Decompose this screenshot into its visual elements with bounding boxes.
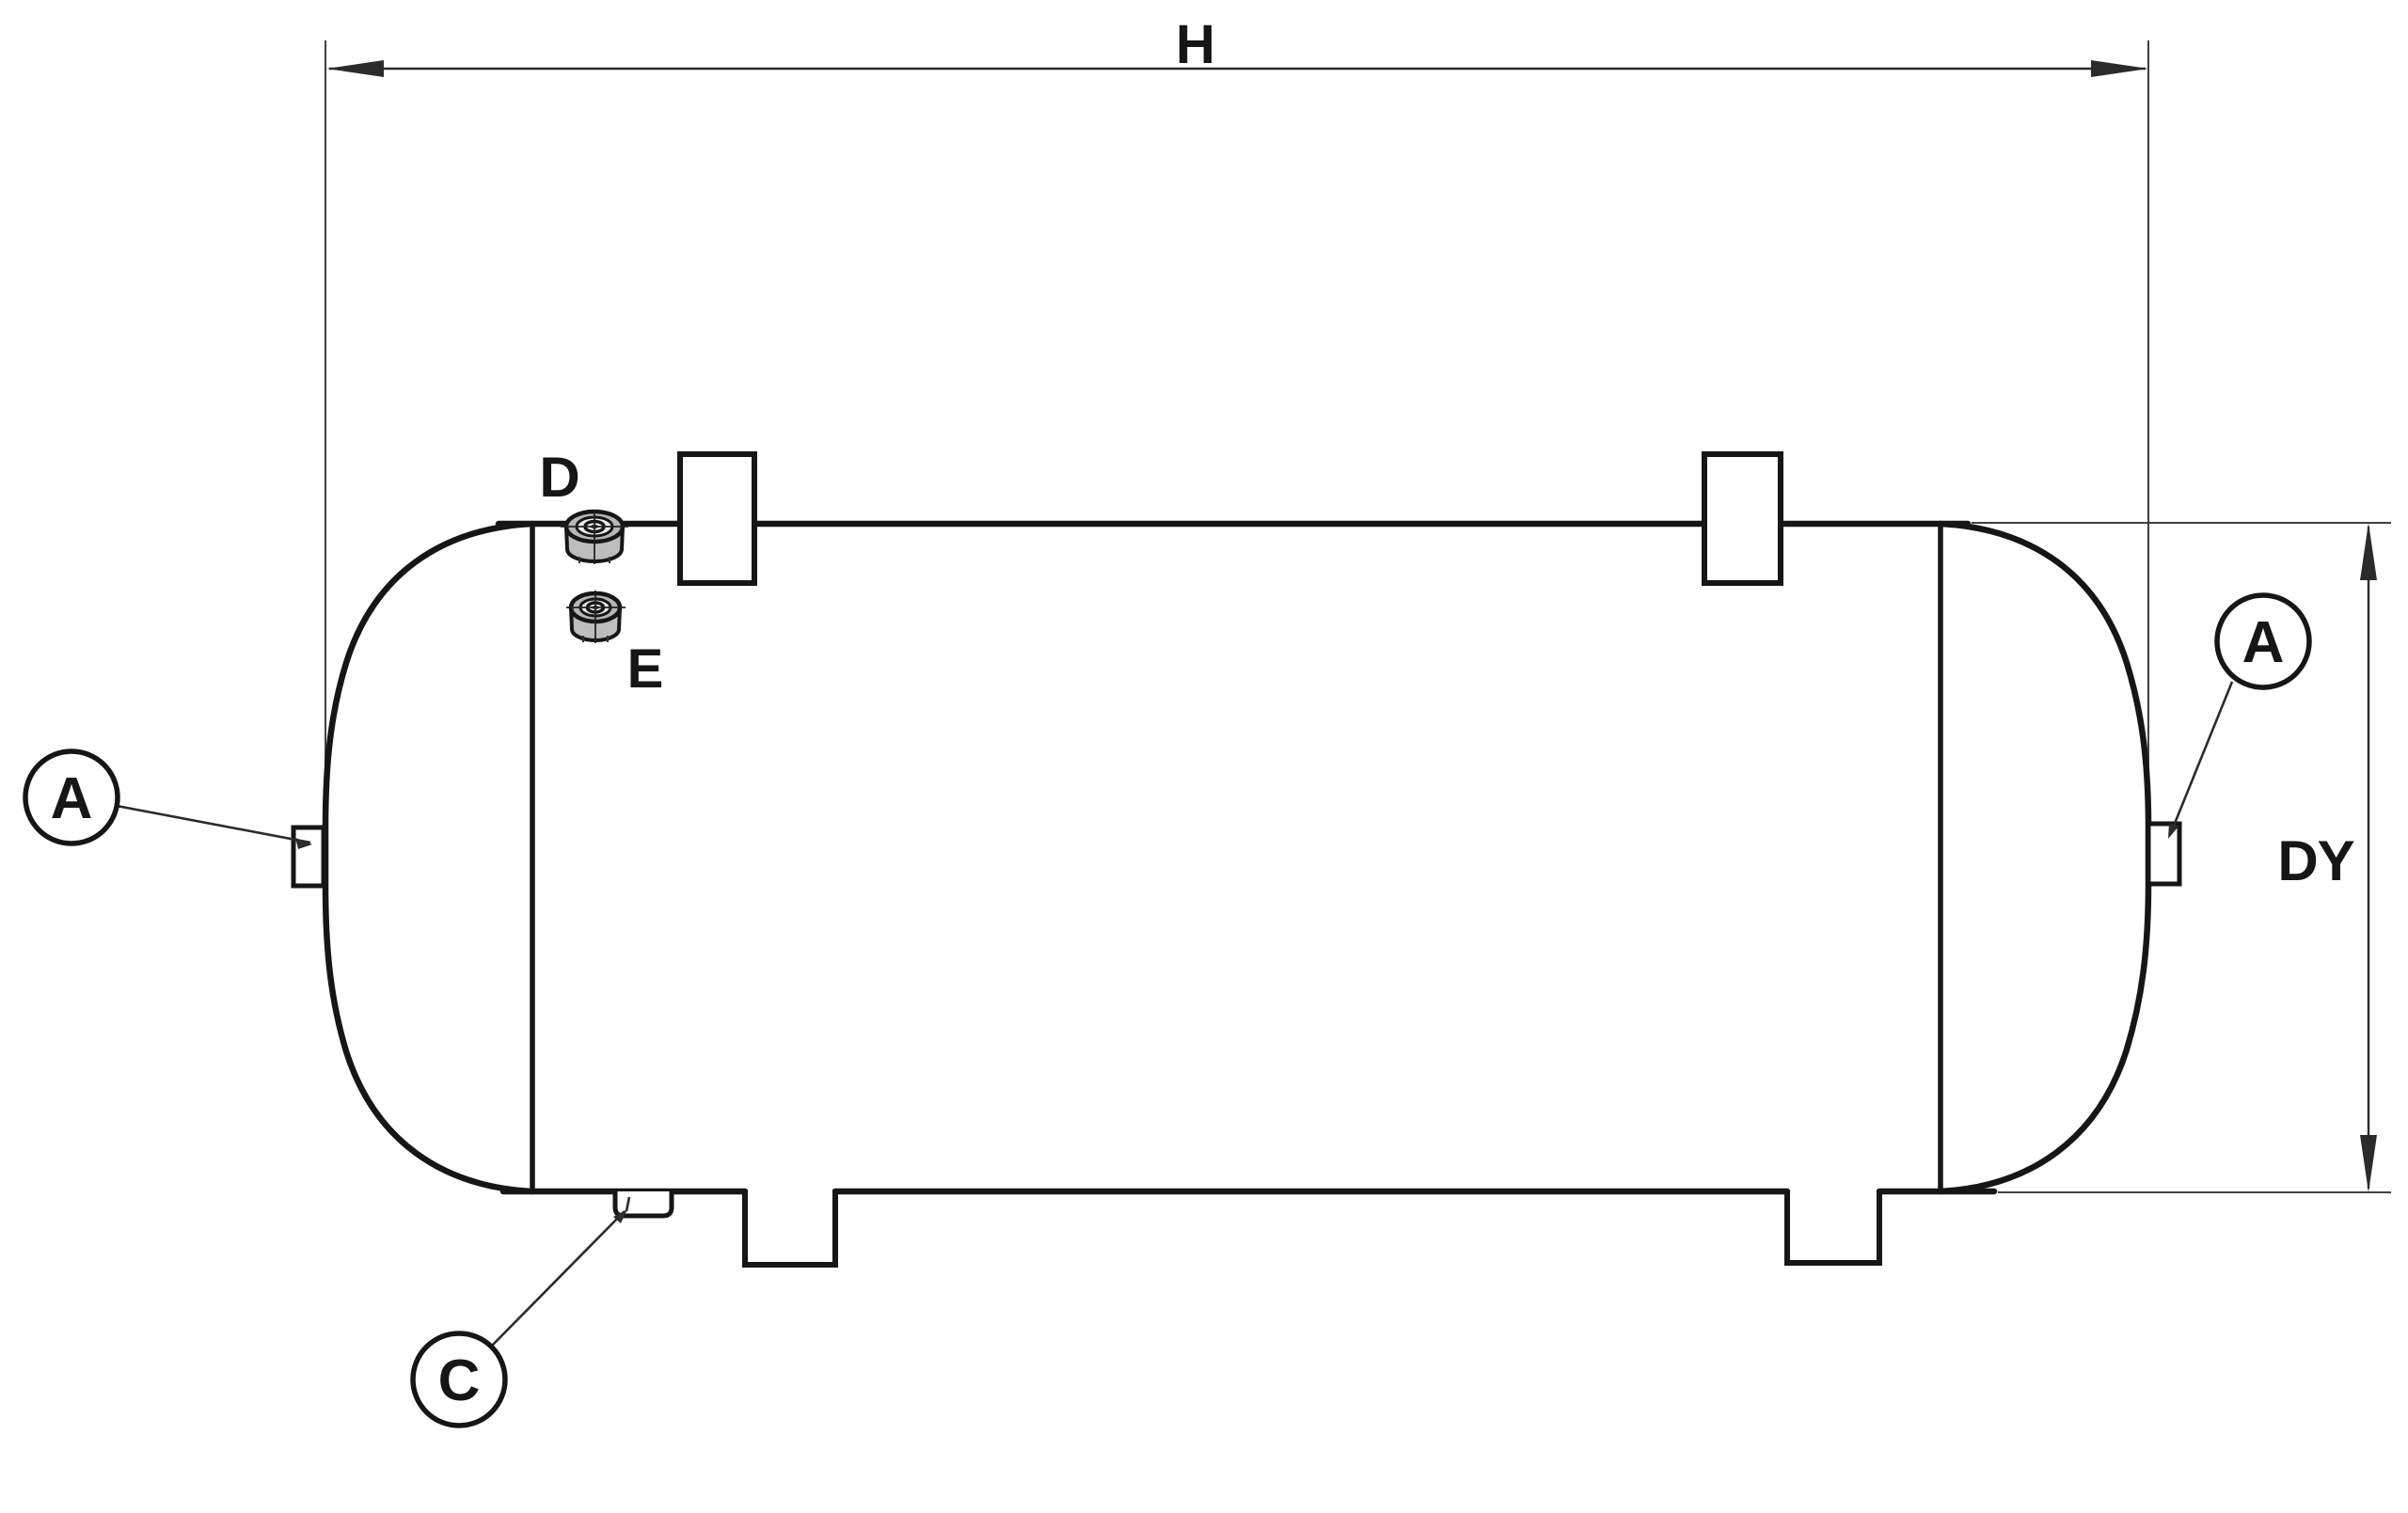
dy-arrow-down-icon xyxy=(2360,1135,2377,1192)
callout-a-left: A xyxy=(25,751,312,849)
h-dimension-label: H xyxy=(1176,14,1215,75)
callout-a-right-label: A xyxy=(2242,610,2285,675)
callout-c-label: C xyxy=(438,1348,481,1413)
fitting-d xyxy=(561,510,628,564)
callout-a-left-leader xyxy=(117,806,310,843)
callout-c: C xyxy=(413,1197,629,1426)
fitting-e-label: E xyxy=(627,638,664,700)
tank-drawing-svg: H DY xyxy=(0,0,2408,1513)
dy-arrow-up-icon xyxy=(2360,523,2377,580)
nozzles xyxy=(293,824,2179,1216)
dished-head-left xyxy=(325,524,532,1191)
tank-drawing-canvas: H DY xyxy=(0,0,2408,1513)
callout-a-left-label: A xyxy=(51,766,93,831)
h-arrow-right-icon xyxy=(2091,60,2148,77)
dished-head-right xyxy=(1941,524,2148,1191)
dy-dimension-label: DY xyxy=(2277,829,2354,892)
nozzle-a-left xyxy=(293,827,324,886)
top-lug-right xyxy=(1704,454,1781,583)
nozzle-a-right xyxy=(2148,824,2179,884)
top-lug-left xyxy=(680,454,754,583)
callout-a-right-leader xyxy=(2170,682,2232,835)
callout-c-leader xyxy=(491,1211,625,1347)
h-arrow-left-icon xyxy=(326,60,384,77)
fitting-d-label: D xyxy=(539,446,579,509)
dimension-h: H xyxy=(325,14,2148,822)
bottom-lug-left xyxy=(745,1191,835,1265)
fitting-e xyxy=(566,591,626,643)
callout-a-right: A xyxy=(2168,595,2309,839)
bottom-lug-right xyxy=(1787,1192,1879,1263)
lugs xyxy=(680,454,1879,1265)
